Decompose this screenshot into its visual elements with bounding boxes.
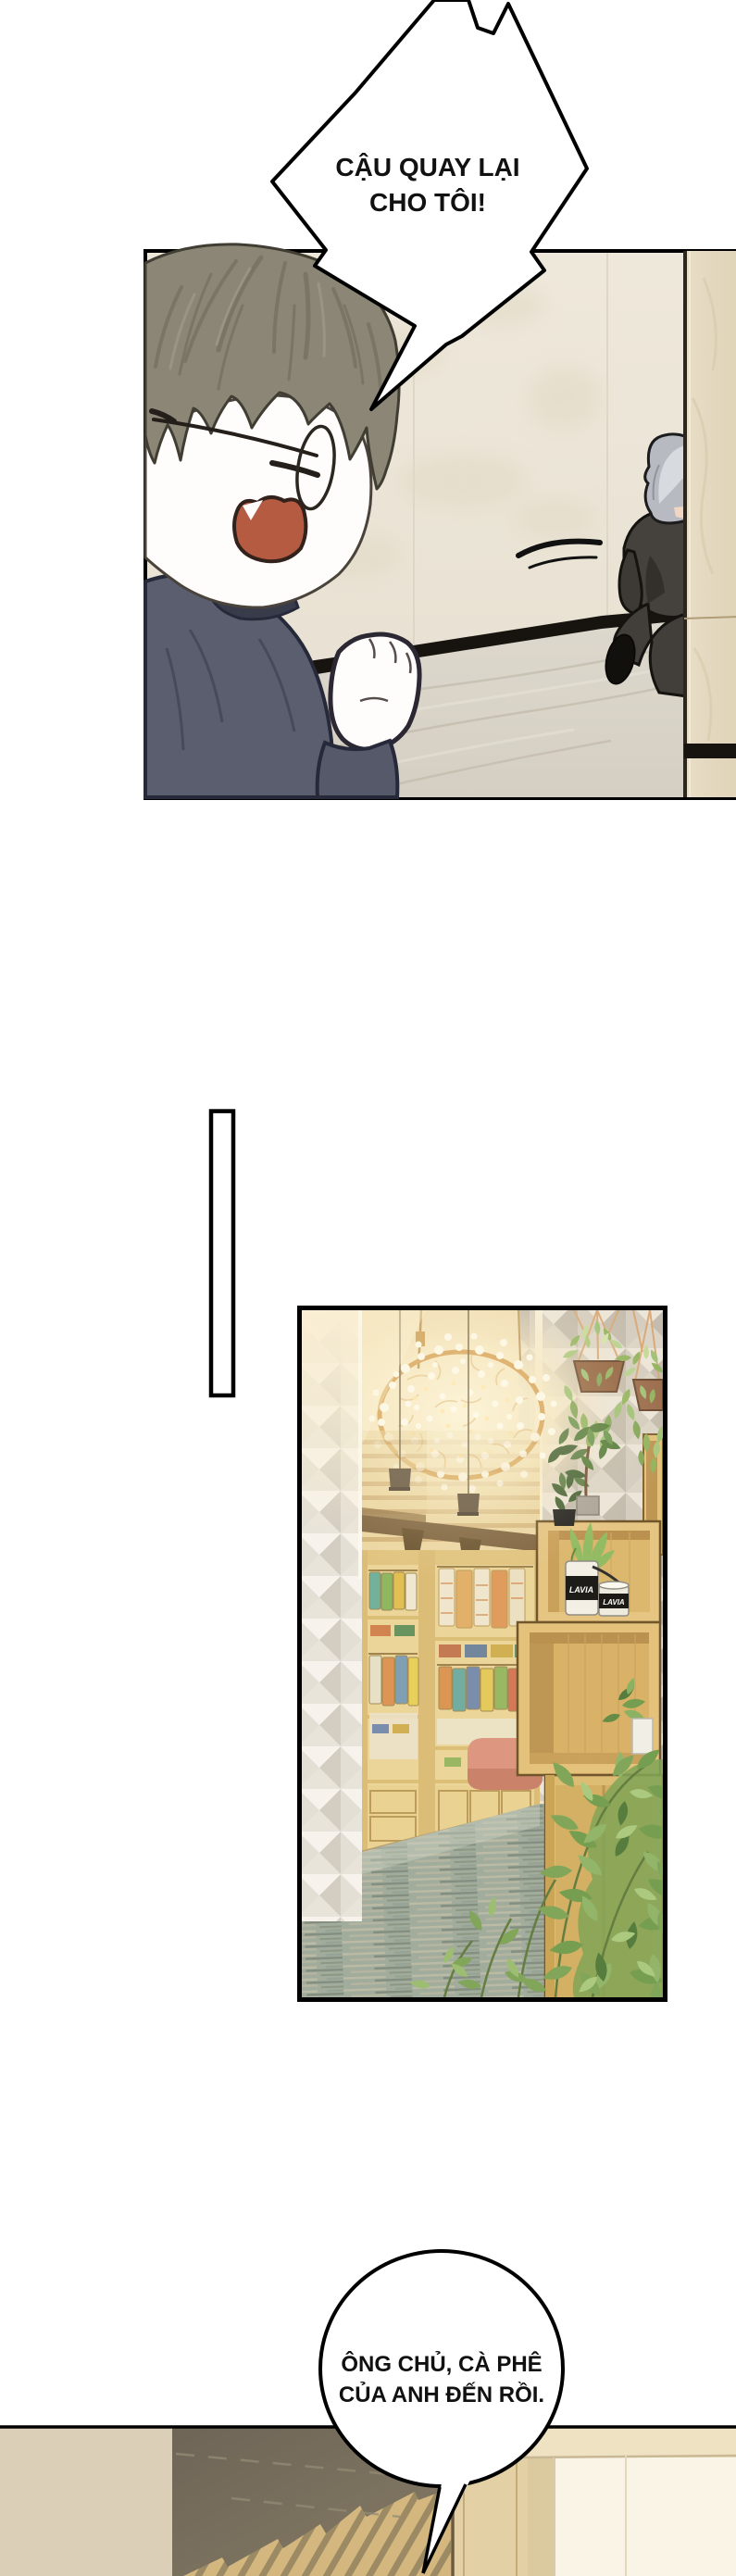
svg-text:ÔNG CHỦ, CÀ PHÊ: ÔNG CHỦ, CÀ PHÊ <box>341 2350 542 2377</box>
svg-text:CHO TÔI!: CHO TÔI! <box>369 187 486 217</box>
svg-text:CỦA ANH ĐẾN RỒI.: CỦA ANH ĐẾN RỒI. <box>339 2381 544 2407</box>
svg-text:CẬU QUAY LẠI: CẬU QUAY LẠI <box>335 153 519 181</box>
